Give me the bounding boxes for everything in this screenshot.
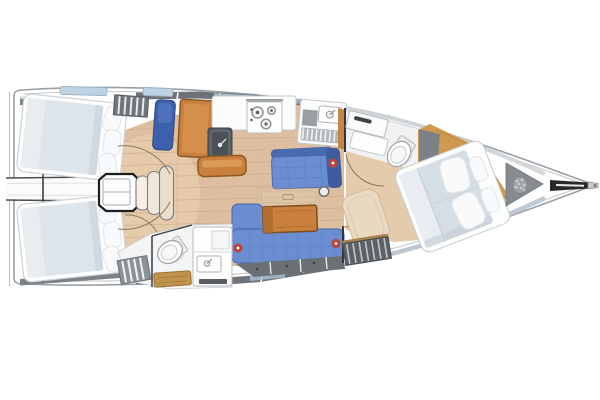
mast-post bbox=[319, 187, 329, 197]
shower-grate bbox=[117, 256, 151, 285]
wood-step bbox=[154, 271, 192, 288]
salon-table bbox=[263, 205, 318, 233]
nav-seat bbox=[152, 99, 175, 150]
galley-sink bbox=[208, 128, 232, 159]
nav-station bbox=[152, 99, 213, 158]
deck-hatch bbox=[60, 86, 107, 95]
stove bbox=[246, 99, 283, 133]
vanity bbox=[193, 227, 232, 286]
folded-table-outline bbox=[258, 188, 319, 206]
bow-roller bbox=[550, 180, 598, 191]
deck-hatch bbox=[143, 87, 173, 96]
floor-plan-canvas bbox=[0, 0, 600, 400]
yacht-floor-plan bbox=[0, 0, 600, 400]
port-slat-locker bbox=[113, 95, 148, 117]
salon-settee-port bbox=[271, 146, 343, 189]
galley-bench bbox=[198, 155, 247, 177]
